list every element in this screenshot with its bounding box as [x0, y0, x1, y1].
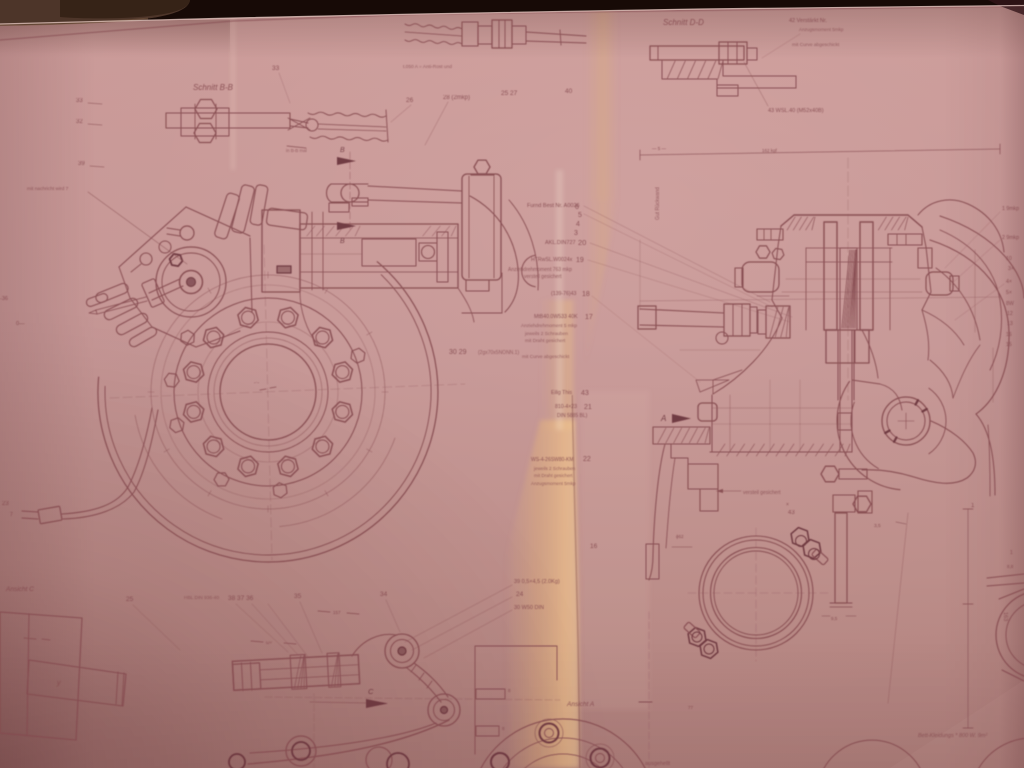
svg-text:16: 16	[1006, 332, 1012, 338]
svg-text:×: ×	[786, 502, 789, 508]
svg-text:Anziehdrehmoment 763 mkp: Anziehdrehmoment 763 mkp	[508, 267, 572, 273]
svg-text:Schnitt D-D: Schnitt D-D	[663, 18, 704, 27]
svg-text:35: 35	[294, 593, 302, 600]
svg-text:Anzugsmoment 5mkp: Anzugsmoment 5mkp	[799, 27, 844, 32]
svg-text:162 kgf: 162 kgf	[762, 148, 778, 153]
svg-text:26: 26	[406, 97, 414, 104]
svg-text:25 27: 25 27	[501, 90, 518, 97]
svg-text:mit Curve abgeschickt: mit Curve abgeschickt	[522, 354, 570, 360]
svg-text:ω˅: ω˅	[266, 640, 273, 645]
svg-text:Ansicht A: Ansicht A	[566, 701, 594, 708]
svg-text:30 W50 DIN: 30 W50 DIN	[514, 605, 544, 611]
svg-text:MtB40.0W533 40K: MtB40.0W533 40K	[534, 314, 578, 320]
svg-text:2 9mkp: 2 9mkp	[1002, 235, 1019, 241]
svg-text:77: 77	[688, 705, 694, 710]
svg-text:21: 21	[584, 404, 592, 411]
svg-text:t.050 A = Anti-Rost und: t.050 A = Anti-Rost und	[403, 64, 452, 70]
svg-text:19: 19	[576, 257, 584, 264]
svg-text:0—: 0—	[16, 321, 25, 327]
svg-text:43: 43	[788, 510, 795, 516]
svg-text:157: 157	[333, 610, 341, 615]
svg-text:Eilig This: Eilig This	[551, 390, 572, 396]
svg-text:5: 5	[578, 212, 582, 219]
svg-text:1 9mkp: 1 9mkp	[1002, 206, 1019, 212]
svg-text:-36: -36	[0, 296, 8, 302]
svg-text:25: 25	[126, 596, 134, 603]
svg-text:8,8: 8,8	[1007, 564, 1014, 569]
svg-text:WS-4-26SW80-KM: WS-4-26SW80-KM	[531, 457, 574, 463]
svg-text:34: 34	[380, 591, 388, 598]
svg-text:15: 15	[1006, 342, 1012, 348]
svg-text:17: 17	[585, 314, 593, 321]
svg-text:4: 4	[576, 221, 580, 228]
svg-text:42 Verstärkt Nr.: 42 Verstärkt Nr.	[789, 18, 827, 24]
svg-text:33: 33	[272, 65, 280, 72]
svg-text:40: 40	[565, 88, 573, 95]
svg-text:mit nachricht wird 7: mit nachricht wird 7	[27, 186, 69, 192]
svg-text:810-4×23: 810-4×23	[555, 404, 577, 410]
svg-text:3,5: 3,5	[874, 523, 881, 529]
svg-text:B: B	[340, 147, 345, 154]
svg-text:39 0,5×4,5 (2.0Kg): 39 0,5×4,5 (2.0Kg)	[514, 579, 560, 585]
svg-text:versteil gesichert: versteil gesichert	[743, 490, 781, 496]
svg-text:33: 33	[76, 98, 83, 104]
svg-text:Schnitt B-B: Schnitt B-B	[193, 83, 234, 92]
svg-text:ϕ62: ϕ62	[676, 534, 684, 539]
svg-text:Anzugsmoment 5mkp: Anzugsmoment 5mkp	[531, 481, 576, 486]
svg-text:DIN 5885 BL): DIN 5885 BL)	[557, 413, 588, 419]
svg-text:mit Draht gesichert: mit Draht gesichert	[534, 473, 573, 478]
svg-text:Gut Rückwand: Gut Rückwand	[655, 187, 661, 220]
svg-text:HTRwSL.W0024x: HTRwSL.W0024x	[531, 257, 573, 263]
svg-text:38 37 36: 38 37 36	[228, 595, 254, 602]
svg-text:23: 23	[2, 501, 9, 507]
svg-text:32: 32	[76, 119, 83, 125]
svg-text:-·-: -·-	[254, 380, 259, 386]
svg-text:C: C	[368, 687, 374, 696]
svg-text:10: 10	[1006, 256, 1012, 262]
svg-text:43 WSL.40 (M52x40B): 43 WSL.40 (M52x40B)	[768, 108, 824, 114]
svg-text:AKL.DIN727: AKL.DIN727	[545, 240, 576, 246]
svg-text:1: 1	[1010, 550, 1013, 556]
svg-text:39: 39	[78, 161, 85, 167]
svg-text:Anziehdrehmoment 5 mkp: Anziehdrehmoment 5 mkp	[521, 323, 577, 329]
svg-text:9,5: 9,5	[831, 616, 838, 621]
svg-text:3×: 3×	[1008, 266, 1014, 272]
svg-text:12: 12	[1007, 311, 1013, 317]
svg-text:(139-76)43: (139-76)43	[551, 291, 576, 297]
svg-text:20: 20	[578, 238, 586, 247]
svg-text:Furnd Best Nr. A0026: Furnd Best Nr. A0026	[527, 203, 580, 209]
svg-text:Ansicht C: Ansicht C	[5, 586, 34, 593]
svg-text:y: y	[56, 680, 61, 687]
svg-text:B: B	[340, 238, 345, 245]
svg-text:(2gx70x5NONN.1): (2gx70x5NONN.1)	[478, 350, 519, 356]
svg-text:5×: 5×	[1006, 290, 1012, 296]
svg-text:24: 24	[516, 591, 524, 598]
svg-text:16: 16	[590, 543, 598, 550]
svg-text:8W: 8W	[1006, 301, 1014, 307]
svg-text:30 29: 30 29	[449, 349, 467, 356]
svg-text:22: 22	[583, 456, 591, 463]
svg-text:13: 13	[1007, 321, 1013, 327]
svg-text:— 5 —: — 5 —	[652, 146, 667, 151]
svg-text:HBL DIN 936-40: HBL DIN 936-40	[184, 595, 219, 601]
svg-text:mit Curve abgeschickt: mit Curve abgeschickt	[792, 42, 840, 48]
svg-text:mit Draht gesichert: mit Draht gesichert	[525, 338, 566, 344]
svg-text:28 (2mkp): 28 (2mkp)	[443, 95, 470, 101]
svg-text:3: 3	[574, 230, 578, 237]
svg-text:jeweils 2 Schrauben: jeweils 2 Schrauben	[524, 331, 568, 337]
svg-text:4×: 4×	[1006, 279, 1012, 285]
svg-text:163: 163	[1002, 612, 1008, 621]
svg-text:43: 43	[581, 390, 589, 397]
svg-text:jeweils 2 Schrauben: jeweils 2 Schrauben	[533, 466, 576, 471]
svg-text:6: 6	[575, 204, 579, 211]
svg-text:18: 18	[582, 291, 590, 298]
svg-text:7: 7	[10, 512, 13, 518]
svg-text:Bett-Kleidungs * 800 W. 9m²: Bett-Kleidungs * 800 W. 9m²	[918, 733, 987, 739]
svg-text:versteil gesichert: versteil gesichert	[524, 274, 562, 280]
svg-text:in B-B mal: in B-B mal	[286, 148, 307, 153]
svg-text:A: A	[660, 414, 666, 423]
